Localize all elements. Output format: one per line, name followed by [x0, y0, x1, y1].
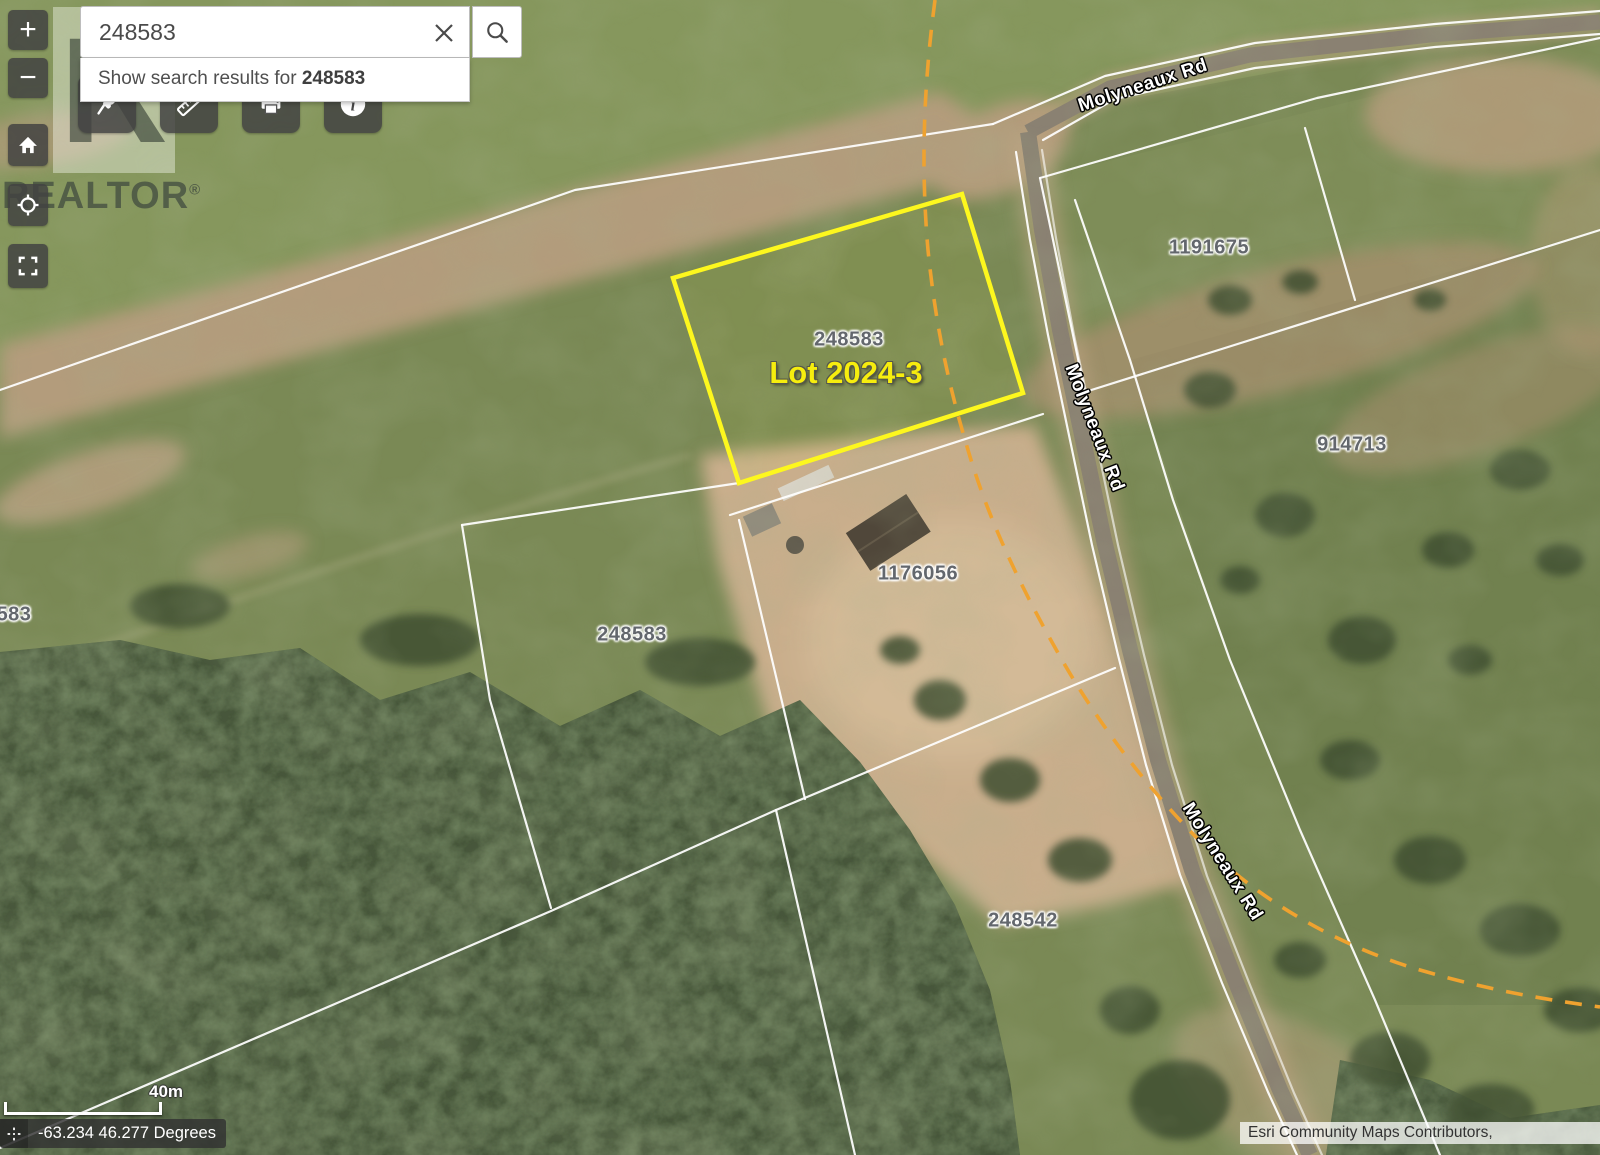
locate-button[interactable]: [8, 184, 48, 226]
home-button[interactable]: [8, 124, 48, 166]
minus-icon: −: [19, 63, 37, 93]
highlighted-lot-name: Lot 2024-3: [769, 355, 922, 391]
plus-icon: +: [19, 15, 37, 45]
zoom-in-button[interactable]: +: [8, 10, 48, 50]
suggestion-text: Show search results for: [98, 68, 302, 89]
parcel-label-248583: 248583: [597, 624, 667, 647]
search-submit-button[interactable]: [472, 6, 522, 58]
suggestion-term: 248583: [302, 68, 365, 89]
magnifier-icon: [483, 18, 511, 46]
coordinate-crosshair-button[interactable]: [0, 1119, 28, 1148]
map-attribution: Esri Community Maps Contributors,: [1240, 1122, 1600, 1144]
parcel-label-583: 583: [0, 604, 31, 627]
highlighted-parcel-id: 248583: [814, 329, 884, 352]
field-texture: [0, 0, 1600, 1155]
crosshair-icon: [5, 1125, 23, 1143]
parcel-label-1191675: 1191675: [1169, 237, 1249, 260]
scale-bar: [4, 1102, 162, 1115]
map-canvas[interactable]: [0, 0, 1600, 1155]
parcel-label-248542: 248542: [988, 910, 1058, 933]
map-viewer: 583 248583 1176056 248542 1191675 914713…: [0, 0, 1600, 1155]
home-icon: [15, 132, 41, 158]
coordinate-readout: -63.234 46.277 Degrees: [28, 1119, 226, 1148]
parcel-label-914713: 914713: [1317, 434, 1387, 457]
locate-icon: [14, 191, 42, 219]
zoom-out-button[interactable]: −: [8, 58, 48, 98]
parcel-label-1176056: 1176056: [878, 563, 958, 586]
search-suggestion[interactable]: Show search results for 248583: [80, 58, 470, 102]
fullscreen-button[interactable]: [8, 244, 48, 288]
fullscreen-icon: [15, 253, 41, 279]
search-box: [80, 6, 470, 58]
search-input[interactable]: [81, 7, 469, 57]
scale-bar-label: 40m: [149, 1082, 183, 1102]
clear-search-icon[interactable]: [433, 22, 455, 44]
